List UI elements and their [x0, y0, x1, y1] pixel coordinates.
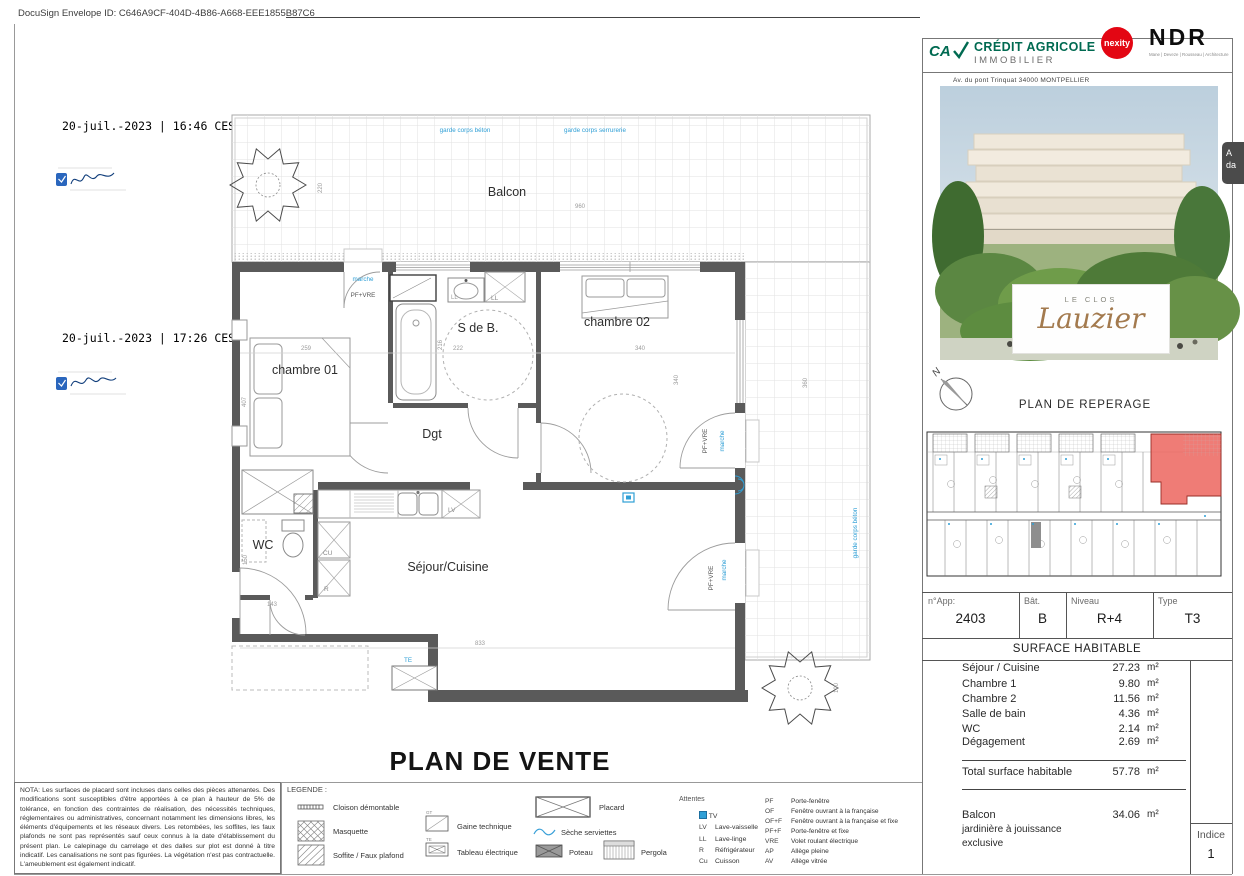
surface-row-name: Dégagement [962, 736, 1025, 748]
surface-row-value: 9.80 [1078, 678, 1140, 690]
docusign-stamp-1 [56, 164, 136, 194]
table-line [922, 592, 1232, 593]
cloison-demontable-icon [297, 803, 325, 811]
marche-label: marche [721, 559, 728, 580]
total-rule-top [962, 760, 1186, 761]
surface-row-unit: m² [1147, 662, 1159, 673]
tree-icon [762, 652, 838, 724]
room-label-sdb: S de B. [458, 321, 499, 335]
abbrev-ap: APAllège pleine [765, 848, 829, 855]
bat-value: B [1019, 611, 1066, 626]
garde-corps-serrurerie-label: garde corps serrurerie [564, 127, 626, 134]
dim-960: 960 [575, 204, 586, 210]
docusign-shield-icon [56, 377, 67, 390]
legend-masquette: Masquette [333, 827, 368, 836]
soffite-icon [297, 844, 325, 866]
gaine-technique-icon [425, 815, 449, 833]
table-line [922, 660, 1232, 661]
cu-label: CU [323, 550, 333, 557]
tableau-electrique-icon [425, 842, 449, 858]
ca-check-icon [954, 42, 968, 57]
signature-scribble [71, 378, 116, 386]
surface-row-name: Chambre 1 [962, 678, 1016, 690]
attente-lv: LVLave-vaisselle [699, 824, 758, 831]
north-arrow-icon: N [926, 362, 982, 420]
docusign-envelope-id: DocuSign Envelope ID: C646A9CF-404D-4B86… [18, 8, 315, 19]
indice-column-line [1190, 660, 1191, 874]
total-value: 57.78 [1078, 766, 1140, 778]
niveau-value: R+4 [1066, 611, 1153, 626]
surface-row-unit: m² [1147, 723, 1159, 734]
side-tab-line-2: da [1226, 160, 1244, 172]
legend-poteau: Poteau [569, 848, 593, 857]
abbrev-of: OFFenêtre ouvrant à la française [765, 808, 879, 815]
pergola-icon [603, 840, 635, 860]
dim-150: 150 [243, 554, 249, 565]
r-label: R [324, 586, 329, 593]
ca-name: CRÉDIT AGRICOLE [974, 39, 1096, 54]
reperage-title: PLAN DE REPERAGE [1000, 399, 1170, 411]
chambre01-furniture [232, 320, 350, 456]
abbrev-pf: PFPorte-fenêtre [765, 798, 829, 805]
north-label: N [930, 366, 943, 379]
terraced-building [964, 134, 1202, 244]
signature-timestamp-1: 20-juil.-2023 | 16:46 CEST [62, 119, 242, 133]
abbrev-av: AVAllège vitrée [765, 858, 827, 865]
pfvre-label: PF+VRE [351, 292, 376, 299]
signature-timestamp-2: 20-juil.-2023 | 17:26 CEST [62, 331, 242, 345]
abbrev-vre: VREVolet roulant électrique [765, 838, 858, 845]
attente-tv: TV [699, 811, 717, 820]
plan-de-vente-page: { "docusign": { "envelope_line": "DocuSi… [0, 0, 1244, 876]
surface-row-value: 4.36 [1078, 708, 1140, 720]
balcon-unit: m² [1147, 809, 1159, 820]
dim-259: 259 [301, 346, 312, 352]
bathroom-fixtures [390, 272, 744, 494]
kitchen-sink [398, 493, 417, 515]
pfvre-label: PF+VRE [702, 429, 709, 454]
placard-icon [535, 796, 591, 818]
surface-row-value: 11.56 [1078, 693, 1140, 705]
nota-box: NOTA: Les surfaces de placard sont inclu… [14, 782, 281, 874]
attente-r: RRéfrigérateur [699, 847, 755, 854]
poteau-icon [535, 844, 563, 858]
dim-340b: 340 [674, 374, 680, 385]
surface-row-value: 2.14 [1078, 723, 1140, 735]
surface-row-unit: m² [1147, 708, 1159, 719]
total-rule-bottom [962, 789, 1186, 790]
abbrev-off: OF+FFenêtre ouvrant à la française et fi… [765, 818, 898, 825]
entry-placard [242, 470, 313, 514]
side-tab-line-1: A [1226, 148, 1244, 160]
project-address: Av. du pont Trinquat 34000 MONTPELLIER [953, 77, 1090, 84]
legend-cloison: Cloison démontable [333, 803, 399, 812]
seche-serviettes-icon [533, 826, 557, 838]
balcon-note-2: exclusive [962, 838, 1003, 849]
balcon-value: 34.06 [1078, 809, 1140, 821]
type-value: T3 [1153, 611, 1232, 626]
signature-scribble [71, 173, 114, 184]
total-name: Total surface habitable [962, 766, 1072, 778]
logos-bottom [922, 72, 1232, 73]
surface-row-unit: m² [1147, 678, 1159, 689]
lv-label: LV [448, 507, 456, 514]
legend-placard: Placard [599, 803, 624, 812]
dim-360: 360 [803, 377, 809, 388]
facade-band [232, 253, 745, 262]
app-label: n°App: [928, 596, 955, 606]
attentes-title: Attentes [679, 796, 705, 803]
attente-tv-label: TV [709, 813, 718, 820]
pfvre-label: PF+VRE [708, 566, 715, 591]
dim-100: 100 [834, 682, 840, 693]
reperage-mini-plan [925, 424, 1237, 586]
floor-plan-drawing: Balcon chambre 01 chambre 02 S de B. Dgt… [230, 108, 875, 735]
room-label-chambre02: chambre 02 [584, 315, 650, 329]
ca-monogram: CA [929, 43, 951, 60]
marche-label: marche [353, 276, 374, 283]
dim-220: 220 [318, 182, 324, 193]
legend: LEGENDE : Cloison démontable Masquette S… [283, 782, 922, 874]
tv-square-icon [699, 811, 707, 819]
balcony-tiles [232, 115, 870, 262]
ndr-sub: Mane | Deveze | Rousseau | Architecture [1149, 52, 1229, 57]
docusign-stamp-2 [56, 368, 136, 398]
table-line [922, 638, 1232, 639]
electrical-panel [392, 666, 437, 690]
nexity-logo: nexity [1101, 27, 1133, 59]
brand-card: LE CLOS Lauzier [1012, 284, 1170, 354]
total-unit: m² [1147, 766, 1159, 777]
nota-right-border [281, 782, 282, 874]
surface-row-value: 2.69 [1078, 736, 1140, 748]
frame-bottom [14, 874, 1232, 875]
dim-833: 833 [475, 641, 486, 647]
garde-corps-beton-vertical-label: garde corps béton [852, 507, 859, 558]
app-value: 2403 [922, 611, 1019, 626]
surface-row-name: Chambre 2 [962, 693, 1016, 705]
panel-divider [922, 38, 923, 874]
indice-label: Indice [1190, 829, 1232, 841]
docusign-shield-icon [56, 173, 67, 186]
indice-value: 1 [1190, 846, 1232, 861]
ll-label: LL [491, 295, 499, 302]
plan-title: PLAN DE VENTE [340, 746, 660, 777]
surface-row-value: 27.23 [1078, 662, 1140, 674]
tv-outlet-dot [626, 496, 631, 500]
ll-label: LL [451, 295, 458, 301]
surface-row-unit: m² [1147, 693, 1159, 704]
surface-row-name: WC [962, 723, 980, 735]
kitchen [318, 490, 480, 596]
mini-balconies [933, 434, 1135, 452]
ndr-logo: NDR [1149, 24, 1208, 51]
marche-label: marche [719, 430, 726, 451]
legend-gaine: Gaine technique [457, 822, 512, 831]
docusign-side-tab[interactable]: A da [1222, 142, 1244, 184]
balcon-note-1: jardinière à jouissance [962, 824, 1062, 835]
niveau-label: Niveau [1071, 596, 1099, 606]
credit-agricole-logo: CA CRÉDIT AGRICOLE IMMOBILIER [928, 34, 1088, 66]
dim-222: 222 [453, 346, 464, 352]
nota-text: NOTA: Les surfaces de placard sont inclu… [20, 786, 275, 869]
attente-ll: LLLave-linge [699, 836, 746, 843]
terrace-dashed-zone [232, 646, 368, 690]
room-label-sejour: Séjour/Cuisine [407, 560, 488, 574]
ca-sub: IMMOBILIER [974, 55, 1055, 66]
surface-row-unit: m² [1147, 736, 1159, 747]
garde-corps-beton-label: garde corps béton [440, 127, 491, 134]
balcon-name: Balcon [962, 809, 996, 821]
legend-title: LEGENDE : [287, 785, 327, 794]
chambre02-furniture [579, 276, 668, 482]
masquette-icon [297, 820, 325, 842]
dim-143: 143 [267, 602, 278, 608]
frame-left [14, 24, 15, 874]
dim-340a: 340 [635, 346, 646, 352]
te-label: TE [404, 657, 412, 664]
surface-row-name: Séjour / Cuisine [962, 662, 1040, 674]
bat-label: Bât. [1024, 596, 1040, 606]
dim-407: 407 [242, 396, 248, 407]
type-label: Type [1158, 596, 1178, 606]
legend-pergola: Pergola [641, 848, 667, 857]
surface-row-name: Salle de bain [962, 708, 1026, 720]
room-label-wc: WC [253, 538, 274, 552]
surface-title: SURFACE HABITABLE [922, 643, 1232, 655]
header-rule [286, 17, 920, 18]
abbrev-pff: PF+FPorte-fenêtre et fixe [765, 828, 849, 835]
indice-box-top [1190, 823, 1232, 824]
legend-tableau: Tableau électrique [457, 848, 518, 857]
brand-script: Lauzier [1013, 302, 1169, 335]
room-label-balcon: Balcon [488, 185, 526, 199]
room-label-dgt: Dgt [422, 427, 442, 441]
legend-seche: Sèche serviettes [561, 828, 616, 837]
dim-216: 216 [438, 339, 444, 350]
room-label-chambre01: chambre 01 [272, 363, 338, 377]
legend-soffite: Soffite / Faux plafond [333, 851, 404, 860]
attente-cu: CuCuisson [699, 858, 740, 865]
